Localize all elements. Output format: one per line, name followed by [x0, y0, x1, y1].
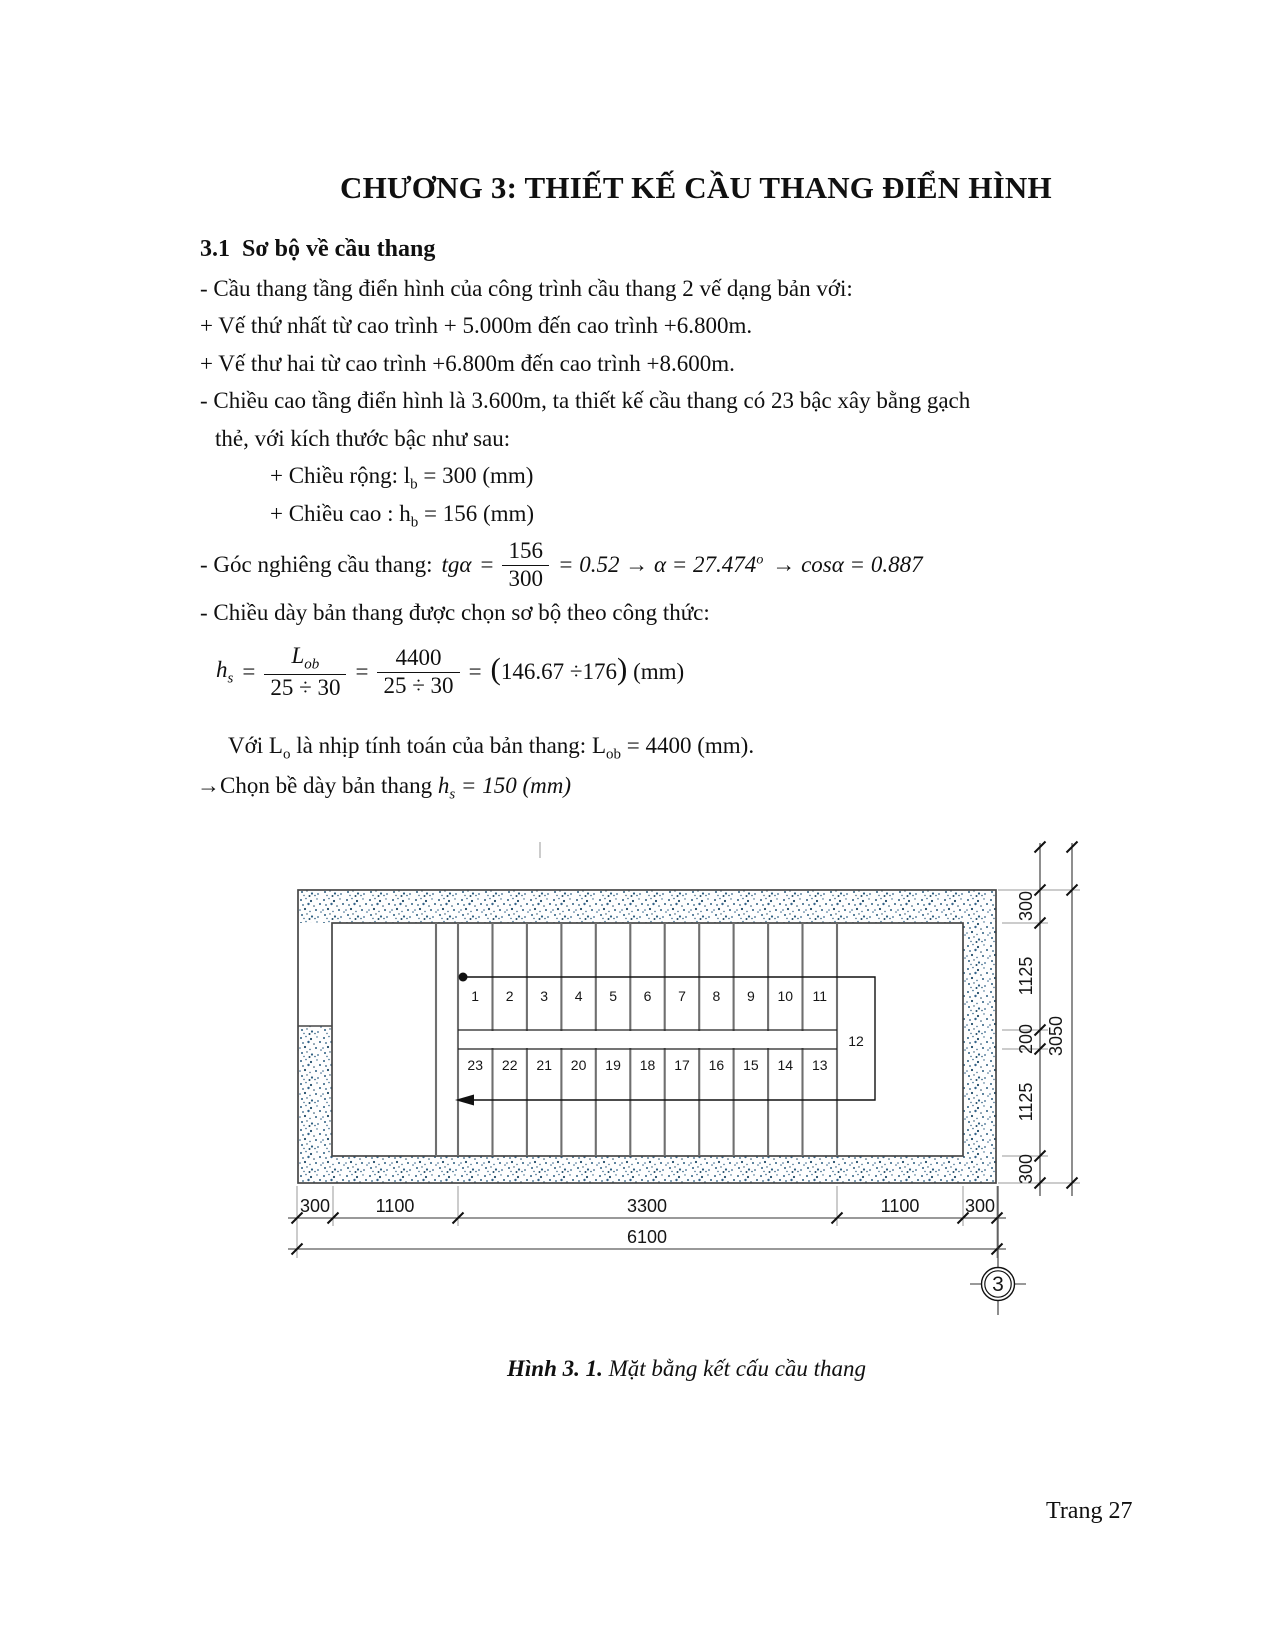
- top-step-numbers: 1 2 3 4 5 6 7 8 9 10 11: [471, 988, 827, 1004]
- fraction-numerator: 156: [502, 538, 549, 565]
- equals-sign: =: [355, 659, 368, 685]
- dim-label: 300: [1016, 891, 1036, 921]
- right-paren: ): [617, 651, 627, 686]
- wall-hatch-left: [298, 1026, 332, 1156]
- wall-hatch-top: [298, 890, 996, 923]
- angle-result-text: = 0.52 → α = 27.474: [558, 552, 756, 577]
- dim-label: 200: [1016, 1024, 1036, 1054]
- fraction-lob: Lob25 ÷ 30: [264, 643, 346, 701]
- step-number: 18: [640, 1057, 656, 1073]
- cos-result: → cosα = 0.887: [772, 552, 922, 578]
- paragraph-line: - Cầu thang tầng điển hình của công trìn…: [200, 276, 853, 302]
- stair-well-band: [459, 1031, 836, 1048]
- paragraph-line: - Chiều dày bản thang được chọn sơ bộ th…: [200, 600, 710, 626]
- hs-subscript: s: [228, 670, 234, 686]
- dim-label: 300: [300, 1196, 330, 1216]
- hs-h: h: [216, 657, 228, 682]
- step-number: 4: [575, 988, 583, 1004]
- dim-label: 1125: [1016, 1083, 1036, 1122]
- fraction-4400: 440025 ÷ 30: [377, 645, 459, 699]
- choose-value: = 150 (mm): [455, 773, 571, 798]
- step-number: 13: [812, 1057, 828, 1073]
- paragraph-line: thẻ, với kích thước bậc như sau:: [215, 426, 510, 452]
- step-number: 14: [778, 1057, 794, 1073]
- grid-bubble-label: 3: [992, 1273, 1004, 1296]
- page-number: Trang 27: [1046, 1498, 1132, 1525]
- dim-label-total: 3050: [1046, 1016, 1066, 1056]
- chapter-title: CHƯƠNG 3: THIẾT KẾ CẦU THANG ĐIỂN HÌNH: [340, 170, 1052, 206]
- step-width-value: = 300 (mm): [418, 463, 534, 488]
- hs-h: h: [438, 773, 450, 798]
- step-width-item: + Chiều rộng: lb = 300 (mm): [270, 463, 533, 494]
- choose-text: Chọn bề dày bản thang: [220, 773, 438, 798]
- step-number: 10: [778, 988, 794, 1004]
- step-number: 1: [471, 988, 479, 1004]
- section-heading: 3.1 Sơ bộ về cầu thang: [200, 236, 435, 263]
- step-height-item: + Chiều cao : hb = 156 (mm): [270, 501, 534, 532]
- fraction-denominator: 25 ÷ 30: [377, 673, 459, 699]
- step-number: 2: [506, 988, 514, 1004]
- step-number: 5: [609, 988, 617, 1004]
- fraction-denominator: 300: [502, 566, 549, 592]
- bottom-step-numbers: 23 22 21 20 19 18 17 16 15 14 13: [467, 1057, 827, 1073]
- step-number: 6: [644, 988, 652, 1004]
- step-width-text: + Chiều rộng: l: [270, 463, 410, 488]
- paragraph-line: + Vế thư hai từ cao trình +6.800m đến ca…: [200, 351, 735, 377]
- figure-caption: Hình 3. 1. Mặt bằng kết cấu cầu thang: [507, 1356, 866, 1382]
- step-number: 20: [571, 1057, 587, 1073]
- equals-sign: =: [480, 552, 493, 578]
- section-number: 3.1: [200, 236, 230, 262]
- lob-l: L: [291, 643, 304, 668]
- step-height-text: + Chiều cao : h: [270, 501, 411, 526]
- dim-labels-bottom: 300 1100 3300 1100 300 6100: [300, 1196, 995, 1247]
- result-unit: (mm): [627, 659, 684, 684]
- fraction-denominator: 25 ÷ 30: [264, 675, 346, 701]
- step-number: 9: [747, 988, 755, 1004]
- figure-caption-text: Mặt bằng kết cấu cầu thang: [603, 1356, 866, 1381]
- left-paren: (: [491, 651, 501, 686]
- step-number: 22: [502, 1057, 518, 1073]
- landing-step-number: 12: [848, 1033, 864, 1049]
- stair-plan-figure: 1 2 3 4 5 6 7 8 9 10 11 23 22 21 20 19 1…: [270, 835, 1090, 1315]
- wall-hatch-bottom: [298, 1156, 996, 1183]
- hs-symbol: hs: [438, 773, 455, 798]
- lo-note-text: là nhịp tính toán của bản thang: L: [290, 733, 606, 758]
- dim-label: 300: [1016, 1154, 1036, 1184]
- fraction-numerator: 4400: [377, 645, 459, 672]
- result-range: 146.67 ÷176: [501, 659, 617, 684]
- formula-result: (146.67 ÷176) (mm): [491, 659, 685, 685]
- degree-superscript: o: [756, 552, 763, 567]
- wall-hatch-right: [963, 923, 996, 1156]
- section-heading-text: Sơ bộ về cầu thang: [242, 236, 435, 262]
- lob-subscript: ob: [606, 747, 621, 763]
- dim-ticks-right: [1035, 842, 1078, 1189]
- step-number: 23: [467, 1057, 483, 1073]
- lo-note-line: Với Lo là nhịp tính toán của bản thang: …: [228, 733, 754, 764]
- dim-label: 1100: [376, 1196, 415, 1216]
- step-number: 7: [678, 988, 686, 1004]
- tg-alpha: tgα: [441, 552, 471, 578]
- right-arrow-icon: →: [197, 773, 220, 798]
- angle-result: = 0.52 → α = 27.474o: [558, 552, 763, 578]
- dim-labels-right: 300 1125 200 1125 300 3050: [1016, 891, 1066, 1184]
- hs-symbol: hs: [216, 657, 233, 688]
- figure-caption-label: Hình 3. 1.: [507, 1356, 603, 1381]
- dim-label: 300: [965, 1196, 995, 1216]
- step-number: 11: [813, 988, 828, 1004]
- fraction-156-300: 156300: [502, 538, 549, 592]
- slope-angle-label: - Góc nghiêng cầu thang:: [200, 552, 432, 578]
- walk-start-dot: [459, 973, 468, 982]
- step-width-subscript: b: [410, 477, 418, 493]
- dim-label: 3300: [627, 1196, 667, 1216]
- dim-label: 1125: [1016, 957, 1036, 996]
- paragraph-line: - Chiều cao tầng điển hình là 3.600m, ta…: [200, 388, 970, 414]
- slab-thickness-formula: hs = Lob25 ÷ 30 = 440025 ÷ 30 = (146.67 …: [216, 638, 684, 706]
- choose-thickness-line: →Chọn bề dày bản thang hs = 150 (mm): [197, 773, 571, 804]
- slope-angle-line: - Góc nghiêng cầu thang: tgα = 156300 = …: [200, 532, 923, 598]
- paragraph-line: + Vế thứ nhất từ cao trình + 5.000m đến …: [200, 313, 752, 339]
- step-number: 15: [743, 1057, 759, 1073]
- lo-note-value: = 4400 (mm).: [621, 733, 754, 758]
- lob-subscript: ob: [304, 656, 319, 672]
- step-number: 3: [540, 988, 548, 1004]
- step-number: 19: [605, 1057, 621, 1073]
- dim-label-total: 6100: [627, 1227, 667, 1247]
- step-number: 17: [674, 1057, 690, 1073]
- fraction-numerator: Lob: [264, 643, 346, 675]
- step-number: 16: [709, 1057, 725, 1073]
- lo-note-text: Với L: [228, 733, 283, 758]
- dim-label: 1100: [881, 1196, 920, 1216]
- document-page: CHƯƠNG 3: THIẾT KẾ CẦU THANG ĐIỂN HÌNH 3…: [0, 0, 1275, 1650]
- section-heading-gap: [230, 236, 242, 262]
- equals-sign: =: [242, 659, 255, 685]
- equals-sign: =: [469, 659, 482, 685]
- step-number: 8: [713, 988, 721, 1004]
- step-height-value: = 156 (mm): [418, 501, 534, 526]
- step-number: 21: [536, 1057, 552, 1073]
